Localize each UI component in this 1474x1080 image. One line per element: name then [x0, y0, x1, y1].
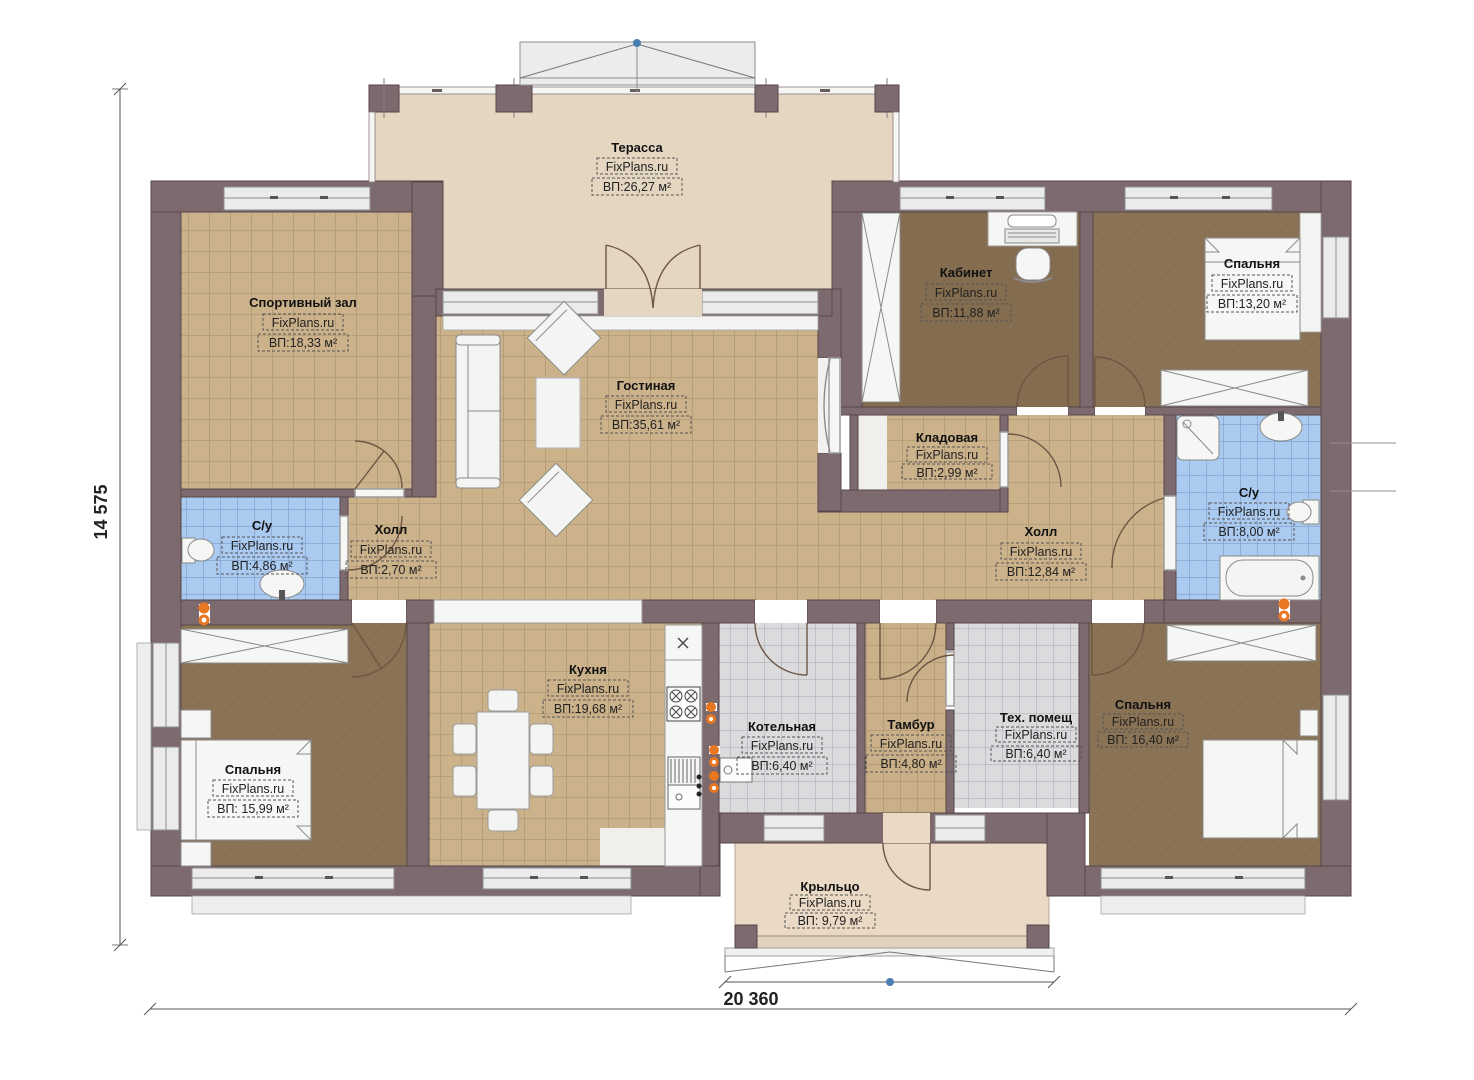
svg-text:ВП:26,27 м²: ВП:26,27 м² [603, 180, 671, 194]
svg-text:ВП:19,68 м²: ВП:19,68 м² [554, 702, 622, 716]
svg-text:FixPlans.ru: FixPlans.ru [1218, 505, 1281, 519]
svg-text:Холл: Холл [1025, 524, 1058, 539]
svg-text:С/у: С/у [1239, 485, 1260, 500]
svg-text:Тех. помещ: Тех. помещ [1000, 710, 1072, 725]
svg-text:FixPlans.ru: FixPlans.ru [1112, 715, 1175, 729]
svg-text:FixPlans.ru: FixPlans.ru [799, 896, 862, 910]
svg-text:FixPlans.ru: FixPlans.ru [557, 682, 620, 696]
svg-text:ВП:4,80 м²: ВП:4,80 м² [880, 757, 941, 771]
svg-text:FixPlans.ru: FixPlans.ru [935, 286, 998, 300]
svg-text:FixPlans.ru: FixPlans.ru [360, 543, 423, 557]
svg-text:14 575: 14 575 [91, 484, 111, 539]
svg-text:FixPlans.ru: FixPlans.ru [272, 316, 335, 330]
svg-text:ВП:11,88 м²: ВП:11,88 м² [932, 306, 999, 320]
svg-text:Терасса: Терасса [611, 140, 663, 155]
svg-text:ВП:35,61 м²: ВП:35,61 м² [612, 418, 680, 432]
svg-text:FixPlans.ru: FixPlans.ru [751, 739, 814, 753]
svg-text:Спортивный зал: Спортивный зал [249, 295, 357, 310]
svg-text:ВП:6,40 м²: ВП:6,40 м² [751, 759, 812, 773]
svg-text:Кладовая: Кладовая [916, 430, 978, 445]
svg-text:С/у: С/у [252, 518, 273, 533]
svg-text:FixPlans.ru: FixPlans.ru [1005, 728, 1068, 742]
svg-text:ВП:18,33 м²: ВП:18,33 м² [269, 336, 337, 350]
svg-text:Холл: Холл [375, 522, 408, 537]
svg-text:FixPlans.ru: FixPlans.ru [1010, 545, 1073, 559]
svg-text:20 360: 20 360 [723, 989, 778, 1009]
svg-text:Котельная: Котельная [748, 719, 816, 734]
svg-text:FixPlans.ru: FixPlans.ru [916, 448, 979, 462]
svg-text:FixPlans.ru: FixPlans.ru [1221, 277, 1284, 291]
svg-text:ВП:8,00 м²: ВП:8,00 м² [1218, 525, 1279, 539]
svg-text:FixPlans.ru: FixPlans.ru [606, 160, 669, 174]
svg-text:Спальня: Спальня [1115, 697, 1171, 712]
svg-text:ВП:2,99 м²: ВП:2,99 м² [916, 466, 977, 480]
svg-text:ВП:12,84 м²: ВП:12,84 м² [1007, 565, 1075, 579]
svg-text:Гостиная: Гостиная [617, 378, 676, 393]
svg-text:Крыльцо: Крыльцо [800, 879, 859, 894]
svg-text:ВП: 9,79 м²: ВП: 9,79 м² [798, 914, 863, 928]
svg-text:Тамбур: Тамбур [887, 717, 934, 732]
svg-text:FixPlans.ru: FixPlans.ru [615, 398, 678, 412]
svg-text:FixPlans.ru: FixPlans.ru [880, 737, 943, 751]
svg-text:ВП: 15,99 м²: ВП: 15,99 м² [217, 802, 289, 816]
svg-text:FixPlans.ru: FixPlans.ru [231, 539, 294, 553]
svg-text:Кухня: Кухня [569, 662, 607, 677]
svg-text:ВП: 16,40 м²: ВП: 16,40 м² [1107, 733, 1179, 747]
svg-text:ВП:2,70 м²: ВП:2,70 м² [360, 563, 421, 577]
svg-text:Спальня: Спальня [1224, 256, 1280, 271]
svg-text:Кабинет: Кабинет [940, 265, 993, 280]
svg-text:ВП:13,20 м²: ВП:13,20 м² [1218, 297, 1286, 311]
svg-text:ВП:6,40 м²: ВП:6,40 м² [1005, 747, 1066, 761]
svg-text:FixPlans.ru: FixPlans.ru [222, 782, 285, 796]
svg-text:ВП:4,86 м²: ВП:4,86 м² [231, 559, 292, 573]
svg-text:Спальня: Спальня [225, 762, 281, 777]
